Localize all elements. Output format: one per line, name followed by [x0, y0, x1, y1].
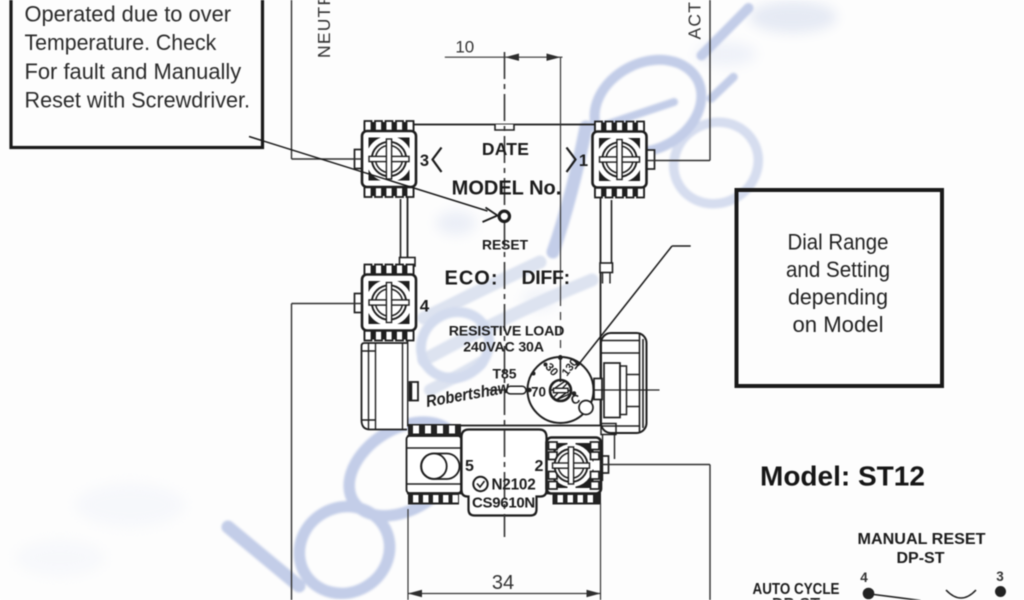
svg-text:depending: depending	[788, 285, 888, 310]
svg-text:70: 70	[531, 385, 546, 400]
svg-text:ACTIVE: ACTIVE	[685, 0, 705, 40]
svg-text:Operated due to over: Operated due to over	[25, 2, 232, 27]
svg-text:Dial Range: Dial Range	[788, 230, 889, 255]
svg-text:MODEL No.: MODEL No.	[452, 178, 562, 200]
svg-text:Reset with Screwdriver.: Reset with Screwdriver.	[25, 88, 251, 113]
svg-text:34: 34	[492, 572, 514, 594]
svg-text:CS9610N: CS9610N	[472, 495, 535, 512]
svg-text:and Setting: and Setting	[786, 257, 890, 282]
svg-text:N2102: N2102	[491, 477, 535, 494]
svg-text:5: 5	[465, 458, 474, 475]
svg-text:on Model: on Model	[793, 312, 884, 337]
svg-text:Model: ST12: Model: ST12	[760, 461, 925, 492]
svg-text:DP-ST: DP-ST	[772, 596, 820, 600]
svg-text:DATE: DATE	[482, 139, 529, 159]
svg-text:4: 4	[860, 570, 868, 585]
svg-text:Temperature. Check: Temperature. Check	[25, 30, 218, 55]
svg-text:3: 3	[996, 569, 1004, 584]
svg-text:For fault and Manually: For fault and Manually	[25, 59, 242, 84]
svg-text:4: 4	[420, 297, 430, 316]
svg-text:MANUAL RESET: MANUAL RESET	[858, 531, 987, 548]
svg-text:RESISTIVE LOAD: RESISTIVE LOAD	[449, 324, 564, 340]
svg-text:DIFF:: DIFF:	[522, 267, 570, 289]
svg-text:DP-ST: DP-ST	[897, 550, 945, 567]
svg-text:2: 2	[535, 458, 544, 475]
svg-text:240VAC 30A: 240VAC 30A	[463, 340, 544, 356]
svg-text:10: 10	[455, 37, 474, 56]
svg-text:NEUTRAL: NEUTRAL	[314, 0, 334, 58]
svg-text:ECO:: ECO:	[445, 268, 499, 290]
svg-text:1: 1	[579, 152, 588, 170]
svg-text:RESET: RESET	[482, 238, 529, 253]
svg-text:3: 3	[420, 152, 429, 170]
